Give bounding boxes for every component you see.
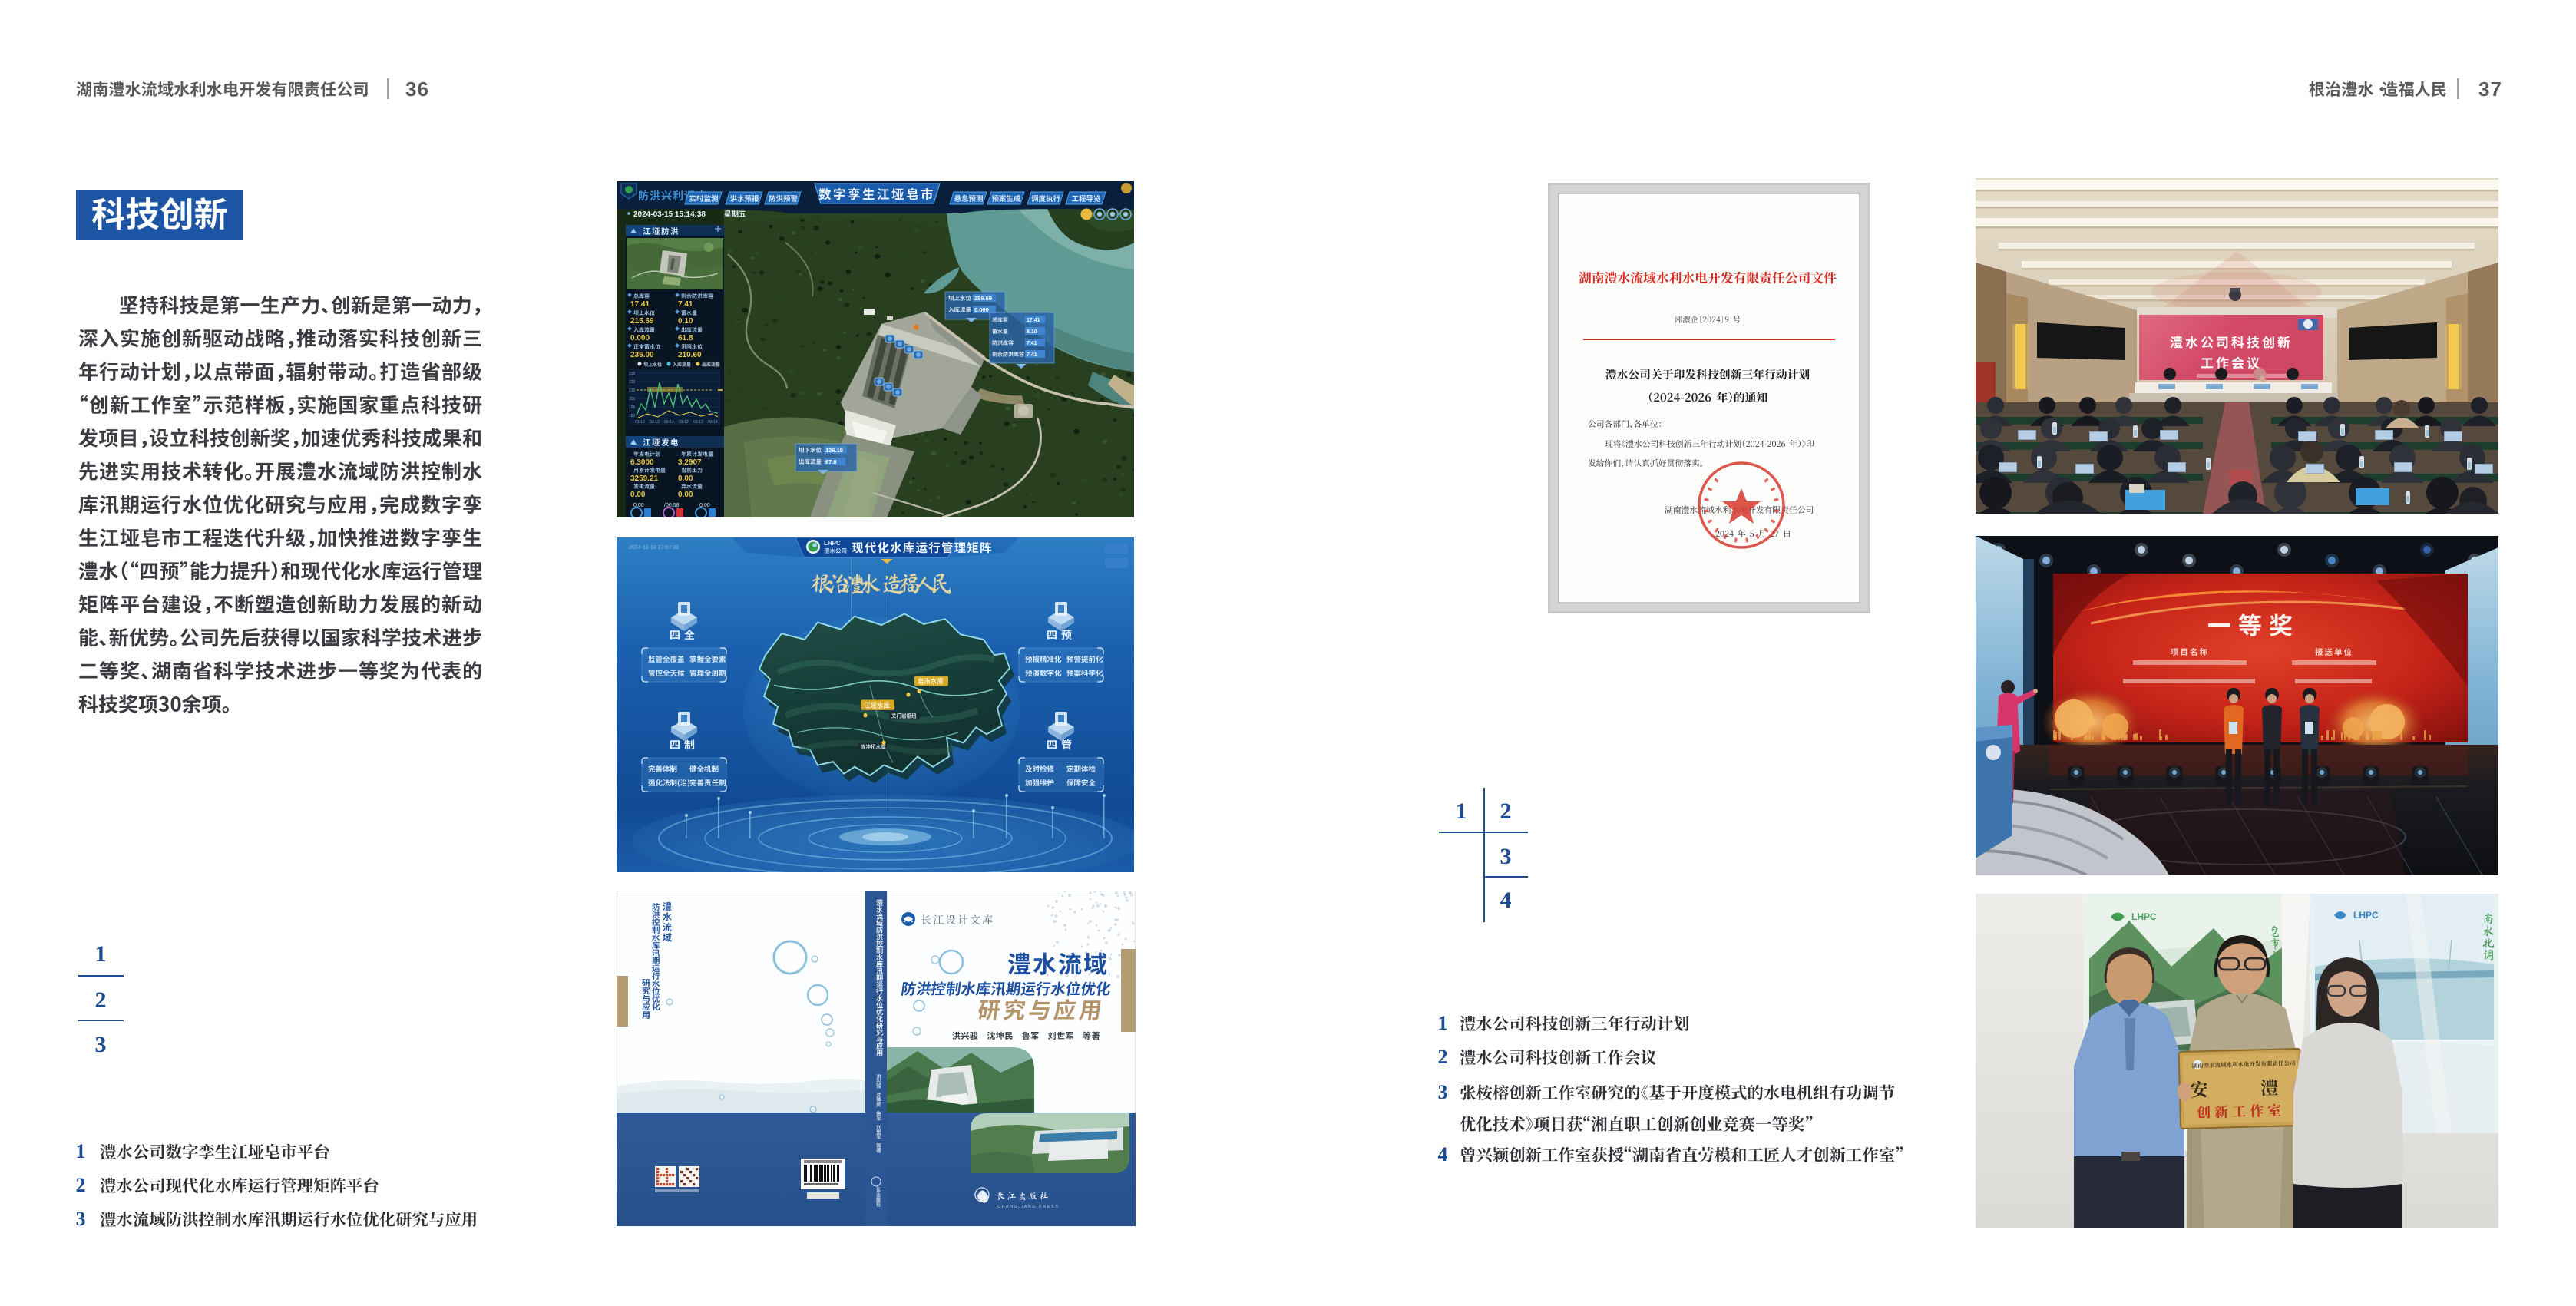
svg-text:1: 1 (1456, 798, 1467, 824)
svg-text:03-14: 03-14 (664, 420, 674, 425)
svg-text:8.10: 8.10 (1027, 329, 1037, 335)
svg-text:2: 2 (76, 1174, 86, 1196)
svg-text:136.19: 136.19 (825, 447, 843, 454)
svg-text:LHPC: LHPC (2131, 911, 2157, 922)
svg-text:2: 2 (95, 987, 107, 1013)
svg-text:3: 3 (1500, 844, 1512, 869)
svg-text:0.000: 0.000 (630, 334, 650, 342)
svg-text:7.41: 7.41 (1027, 352, 1037, 358)
svg-text:0.00: 0.00 (630, 491, 646, 499)
svg-text:7.41: 7.41 (1027, 341, 1037, 346)
svg-text:0.00: 0.00 (678, 474, 693, 483)
svg-text:210.60: 210.60 (678, 351, 702, 359)
svg-text:215.69: 215.69 (630, 317, 654, 326)
svg-text:1: 1 (95, 941, 107, 967)
svg-text:7.41: 7.41 (678, 300, 693, 309)
svg-text:LHPC: LHPC (2353, 910, 2379, 921)
svg-text:CHANGJIANG PRESS: CHANGJIANG PRESS (997, 1205, 1059, 1209)
svg-text:17.41: 17.41 (1027, 318, 1040, 323)
svg-text:2024-03-15 15:14:38: 2024-03-15 15:14:38 (633, 210, 706, 219)
svg-text:230: 230 (629, 372, 636, 376)
svg-text:256.69: 256.69 (974, 295, 992, 302)
svg-text:0.10: 0.10 (678, 317, 693, 326)
svg-text:3259.21: 3259.21 (630, 474, 659, 483)
svg-text:4: 4 (1438, 1143, 1448, 1165)
svg-text:180: 180 (629, 414, 636, 418)
svg-text:210: 210 (629, 388, 636, 393)
svg-text:36: 36 (405, 78, 429, 101)
svg-text:3: 3 (1438, 1081, 1448, 1103)
svg-text:03-12: 03-12 (679, 420, 689, 425)
svg-text:0.000: 0.000 (974, 306, 989, 313)
svg-text:236.00: 236.00 (630, 351, 654, 359)
svg-text:3.2907: 3.2907 (678, 458, 702, 467)
svg-text:1: 1 (76, 1140, 86, 1162)
svg-text:03-13: 03-13 (693, 420, 703, 425)
svg-text:6.3000: 6.3000 (630, 458, 654, 467)
svg-text:2: 2 (1500, 798, 1512, 824)
svg-text:0.00: 0.00 (678, 491, 693, 499)
svg-text:03-13: 03-13 (650, 420, 660, 425)
svg-text:3: 3 (95, 1032, 107, 1057)
svg-text:67.8: 67.8 (825, 458, 837, 465)
svg-text:61.8: 61.8 (678, 334, 693, 342)
svg-text:17.41: 17.41 (630, 300, 650, 309)
svg-text:200: 200 (629, 397, 636, 402)
svg-text:3: 3 (76, 1208, 86, 1230)
svg-text:2024-12-18 17:07:32: 2024-12-18 17:07:32 (629, 545, 679, 551)
svg-text:4: 4 (1500, 888, 1512, 913)
svg-text:2: 2 (1438, 1046, 1448, 1068)
svg-text:220: 220 (629, 380, 636, 385)
svg-text:37: 37 (2478, 78, 2502, 101)
svg-text:190: 190 (629, 405, 636, 410)
svg-text:1: 1 (1438, 1012, 1448, 1034)
svg-text:03-14: 03-14 (708, 420, 718, 425)
svg-text:03-12: 03-12 (635, 420, 645, 425)
svg-text:LHPC: LHPC (824, 540, 841, 547)
